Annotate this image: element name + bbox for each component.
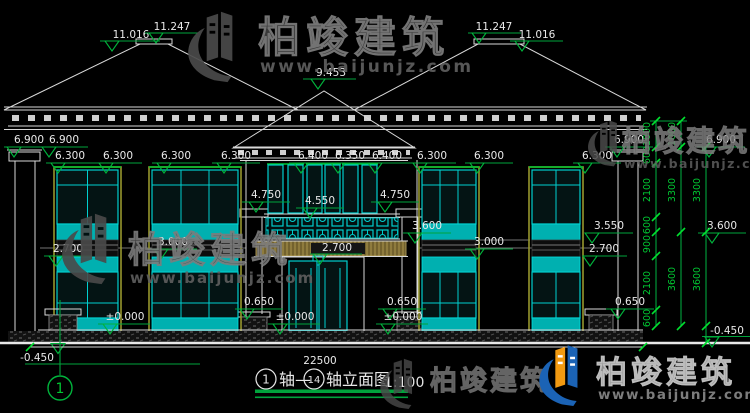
elevation-value: ±0.000 <box>384 311 423 323</box>
watermark-bottom-mid: 柏竣建筑 <box>380 359 550 409</box>
elevation-value: 6.350 <box>335 150 365 162</box>
elevation-value: ±0.000 <box>106 311 145 323</box>
elevation-value: 4.750 <box>380 189 410 201</box>
overall-width-dimension: 22500 <box>26 343 647 367</box>
elevation-marker: 3.550 <box>585 220 633 243</box>
watermark-top-center: 柏竣建筑 www.baijunjz.com <box>188 12 473 82</box>
watermark-brand: 柏竣建筑 <box>596 355 736 391</box>
elevation-marker: 11.247 <box>468 21 521 43</box>
elevation-value: 6.300 <box>221 150 251 162</box>
elevation-value: 11.016 <box>519 29 556 41</box>
elevation-value: 6.300 <box>55 150 85 162</box>
elevation-value: 11.247 <box>154 21 191 33</box>
brand-logo-icon <box>188 12 232 82</box>
title-axis-start: 1 <box>262 373 270 387</box>
window-unit-c <box>419 167 479 335</box>
dim-value: 3300 <box>667 178 678 202</box>
watermark-brand: 柏竣建筑 <box>430 365 550 397</box>
watermark-brand: 柏竣建筑 <box>128 230 292 271</box>
elevation-value: 11.247 <box>476 21 513 33</box>
brand-logo-colored: 柏竣建筑 www.baijunjz.com <box>539 345 750 406</box>
ground-hatch <box>8 331 643 343</box>
elevation-marker: 2.700 <box>583 243 627 266</box>
elevation-value: 6.400 <box>372 150 402 162</box>
watermark-url: www.baijunjz.com <box>598 387 750 403</box>
dim-value: 600 <box>642 216 653 234</box>
elevation-value: -0.450 <box>20 352 54 364</box>
elevation-value: 6.900 <box>14 134 44 146</box>
elevation-value: 0.650 <box>387 296 417 308</box>
dim-value: 600 <box>642 309 653 327</box>
elevation-marker: 3.600 <box>698 220 746 243</box>
elevation-value: 3.550 <box>594 220 624 232</box>
elevation-value: 6.300 <box>417 150 447 162</box>
elevation-value: 2.700 <box>589 243 619 255</box>
elevation-value: 2.700 <box>322 242 352 254</box>
elevation-value: 3.600 <box>707 220 737 232</box>
left-hip-roof <box>4 39 298 110</box>
title-name: 轴立面图 <box>326 370 390 389</box>
elevation-marker: 11.016 <box>510 29 563 51</box>
dim-value: 3300 <box>692 178 703 202</box>
dim-value: 2100 <box>642 178 653 202</box>
elevation-value: ±0.000 <box>276 311 315 323</box>
axis-number: 1 <box>56 381 65 397</box>
watermark-url: www.baijunjz.com <box>130 269 315 287</box>
elevation-value: 6.300 <box>474 150 504 162</box>
elevation-value: 3.000 <box>474 236 504 248</box>
elevation-marker: 11.016 <box>100 29 160 51</box>
elevation-value: 0.650 <box>615 296 645 308</box>
elevation-value: 6.400 <box>298 150 328 162</box>
elevation-value: 11.016 <box>113 29 150 41</box>
cad-elevation-drawing: 11.016 11.247 9.453 11.247 11.016 6.900 … <box>0 0 750 413</box>
watermark-brand: 柏竣建筑 <box>258 13 450 62</box>
left-corner-column <box>7 150 42 331</box>
elevation-value: 4.750 <box>251 189 281 201</box>
elevation-value: 4.550 <box>305 195 335 207</box>
watermark-url: www.baijunjz.com <box>260 57 474 77</box>
elevation-value: -0.450 <box>710 325 744 337</box>
watermark-top-right: 柏竣建筑 www.baijunjz.com <box>588 120 750 171</box>
elevation-value: 6.900 <box>49 134 79 146</box>
dim-value: 3600 <box>692 267 703 291</box>
elevation-value: 3.600 <box>412 220 442 232</box>
elevation-value: 6.300 <box>161 150 191 162</box>
watermark-url: www.baijunjz.com <box>624 156 750 171</box>
dim-value: 2100 <box>642 271 653 295</box>
overall-width-value: 22500 <box>303 355 336 367</box>
window-unit-d <box>529 167 583 335</box>
brand-logo-icon <box>380 359 412 409</box>
dim-value: 3600 <box>667 267 678 291</box>
title-axis-end: 14 <box>308 375 321 386</box>
dim-value: 900 <box>642 235 653 253</box>
elevation-value: 0.650 <box>244 296 274 308</box>
watermark-brand: 柏竣建筑 <box>622 124 750 158</box>
elevation-value: 6.300 <box>103 150 133 162</box>
